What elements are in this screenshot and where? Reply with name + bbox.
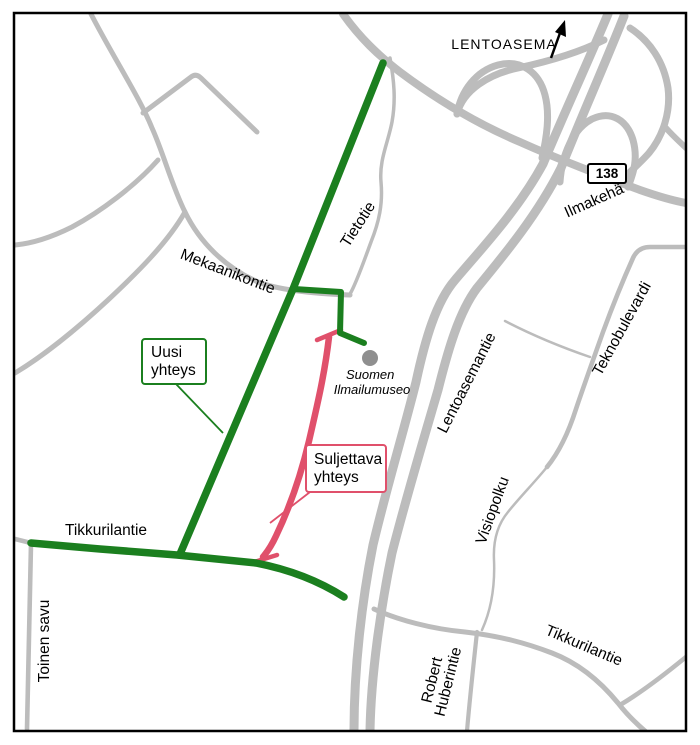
ramp-east-border-path bbox=[666, 128, 686, 148]
label-tikkurilantie-west: Tikkurilantie bbox=[65, 522, 147, 539]
callout-new-connection: Uusi yhteys bbox=[142, 339, 223, 433]
label-toinen-savu: Toinen savu bbox=[36, 600, 53, 683]
label-tikkurilantie-east: Tikkurilantie bbox=[543, 622, 625, 670]
callout-new-leader-line bbox=[176, 384, 223, 433]
road-toinen-savu-path bbox=[27, 544, 31, 729]
label-tietotie: Tietotie bbox=[337, 199, 379, 250]
road-southeast-branch-path bbox=[620, 657, 686, 705]
road-west-branch-upper-path bbox=[15, 160, 158, 245]
label-mekaanikontie: Mekaanikontie bbox=[178, 246, 277, 298]
airport-direction-arrowhead-icon bbox=[555, 20, 566, 37]
road-robert-huberintie-path bbox=[467, 632, 477, 731]
museum-dot bbox=[362, 350, 378, 366]
road-number-badge-text: 138 bbox=[596, 166, 619, 181]
road-tikkurilantie-east-path bbox=[374, 609, 645, 731]
road-museum-connector-path bbox=[505, 321, 590, 357]
road-dead-end-north-path bbox=[143, 75, 257, 132]
airport-direction-label: LENTOASEMA bbox=[451, 36, 556, 52]
road-teknobulevardi-path bbox=[547, 247, 686, 467]
new-route-tikkurilantie-path bbox=[31, 543, 344, 597]
map-canvas: LENTOASEMA Ilmakehä Tietotie Mekaanikont… bbox=[0, 0, 700, 745]
road-number-badge: 138 bbox=[588, 164, 626, 183]
label-robert-huberintie: Robert Huberintie bbox=[416, 642, 465, 719]
label-teknobulevardi: Teknobulevardi bbox=[589, 279, 654, 378]
highlight-routes bbox=[31, 63, 383, 597]
map-svg: LENTOASEMA Ilmakehä Tietotie Mekaanikont… bbox=[0, 0, 700, 745]
label-visiopolku: Visiopolku bbox=[473, 474, 513, 546]
label-museum: Suomen Ilmailumuseo bbox=[334, 367, 411, 397]
label-ilmakeha: Ilmakehä bbox=[562, 180, 627, 221]
